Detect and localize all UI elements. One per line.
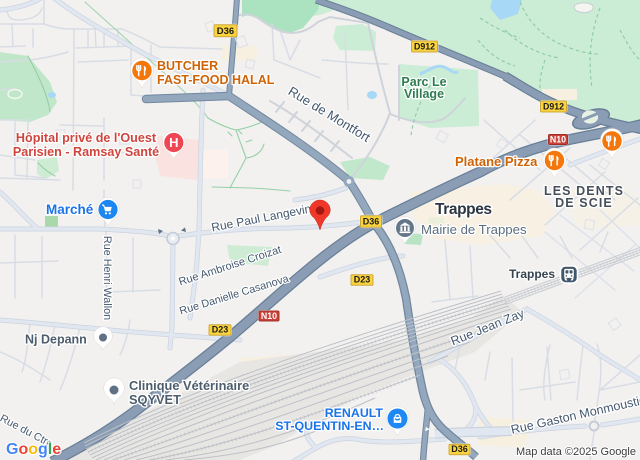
svg-text:Clinique Vétérinaire: Clinique Vétérinaire	[129, 378, 249, 393]
svg-text:Trappes: Trappes	[435, 201, 492, 218]
svg-text:Google: Google	[6, 441, 61, 458]
svg-text:RENAULT: RENAULT	[325, 406, 384, 420]
svg-text:D23: D23	[212, 325, 229, 335]
svg-text:N10: N10	[550, 134, 566, 144]
svg-text:D912: D912	[543, 101, 564, 111]
svg-text:Map data ©2025 Google: Map data ©2025 Google	[516, 446, 636, 458]
svg-text:D23: D23	[354, 275, 371, 285]
svg-text:D912: D912	[414, 41, 435, 51]
svg-text:Nj Depann: Nj Depann	[25, 333, 87, 347]
svg-text:Trappes: Trappes	[509, 267, 555, 281]
svg-text:Hôpital privé de l'Ouest: Hôpital privé de l'Ouest	[16, 131, 157, 145]
svg-text:H: H	[169, 135, 178, 150]
svg-text:D36: D36	[217, 26, 234, 37]
svg-text:FAST-FOOD HALAL: FAST-FOOD HALAL	[157, 73, 275, 87]
svg-text:Platane Pizza: Platane Pizza	[455, 154, 538, 169]
svg-text:Parisien - Ramsay Santé: Parisien - Ramsay Santé	[13, 145, 159, 159]
svg-text:D36: D36	[451, 444, 468, 454]
svg-text:D36: D36	[363, 217, 380, 227]
svg-text:SQYVET: SQYVET	[129, 392, 181, 407]
svg-text:DE SCIE: DE SCIE	[555, 196, 613, 210]
svg-text:Mairie de Trappes: Mairie de Trappes	[421, 222, 527, 237]
svg-text:N10: N10	[261, 311, 277, 321]
svg-text:Marché: Marché	[46, 202, 94, 217]
svg-text:Village: Village	[404, 87, 444, 101]
svg-text:ST-QUENTIN-EN…: ST-QUENTIN-EN…	[275, 419, 384, 433]
svg-text:Rue Henri Wallon: Rue Henri Wallon	[101, 236, 113, 320]
svg-text:BUTCHER: BUTCHER	[157, 59, 218, 73]
